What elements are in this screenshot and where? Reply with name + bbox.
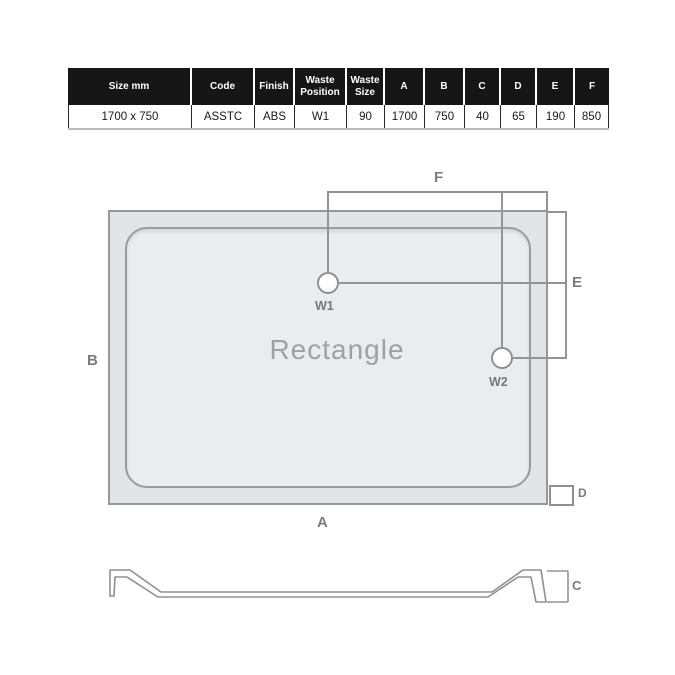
waste-w2-label: W2 <box>489 376 508 389</box>
dim-label-d: D <box>578 487 587 499</box>
dim-label-a: A <box>317 515 328 530</box>
cell-a: 1700 <box>385 105 425 128</box>
corner-detail-square <box>549 485 574 506</box>
dim-line-e-vertical <box>565 211 567 359</box>
cell-b: 750 <box>425 105 465 128</box>
cell-f: 850 <box>575 105 609 128</box>
header-a: A <box>385 68 425 105</box>
header-waste-size: Waste Size <box>347 68 385 105</box>
header-f: F <box>575 68 609 105</box>
waste-w1-label: W1 <box>315 300 334 313</box>
tray-profile-outline <box>110 570 546 602</box>
dim-line-e-from-w1 <box>339 282 567 284</box>
dim-label-f: F <box>434 170 443 185</box>
dim-line-w2-drop <box>501 211 503 347</box>
header-e: E <box>537 68 575 105</box>
dim-label-b: B <box>87 353 98 368</box>
header-waste-position: Waste Position <box>295 68 347 105</box>
cell-c: 40 <box>465 105 501 128</box>
dim-label-e: E <box>572 275 582 290</box>
cell-code: ASSTC <box>192 105 255 128</box>
dim-line-f-horizontal <box>328 191 548 193</box>
dim-label-c: C <box>572 579 581 592</box>
header-d: D <box>501 68 537 105</box>
spec-table-header-row: Size mm Code Finish Waste Position Waste… <box>68 68 609 105</box>
header-size-mm: Size mm <box>68 68 192 105</box>
header-finish: Finish <box>255 68 295 105</box>
profile-cross-section-drawing <box>100 555 580 615</box>
spec-table-value-row: 1700 x 750 ASSTC ABS W1 90 1700 750 40 6… <box>68 105 609 130</box>
header-c: C <box>465 68 501 105</box>
cell-size-mm: 1700 x 750 <box>68 105 192 128</box>
header-code: Code <box>192 68 255 105</box>
spec-table: Size mm Code Finish Waste Position Waste… <box>68 68 609 130</box>
cell-finish: ABS <box>255 105 295 128</box>
spec-sheet: Size mm Code Finish Waste Position Waste… <box>0 0 675 675</box>
dim-line-f-right-tick <box>546 191 548 212</box>
cell-waste-position: W1 <box>295 105 347 128</box>
cell-waste-size: 90 <box>347 105 385 128</box>
waste-w2-circle <box>491 347 513 369</box>
shape-name-label: Rectangle <box>237 334 437 366</box>
waste-w1-circle <box>317 272 339 294</box>
header-b: B <box>425 68 465 105</box>
cell-d: 65 <box>501 105 537 128</box>
dim-line-e-from-w2 <box>513 357 567 359</box>
cell-e: 190 <box>537 105 575 128</box>
dim-line-w1-drop <box>327 211 329 272</box>
